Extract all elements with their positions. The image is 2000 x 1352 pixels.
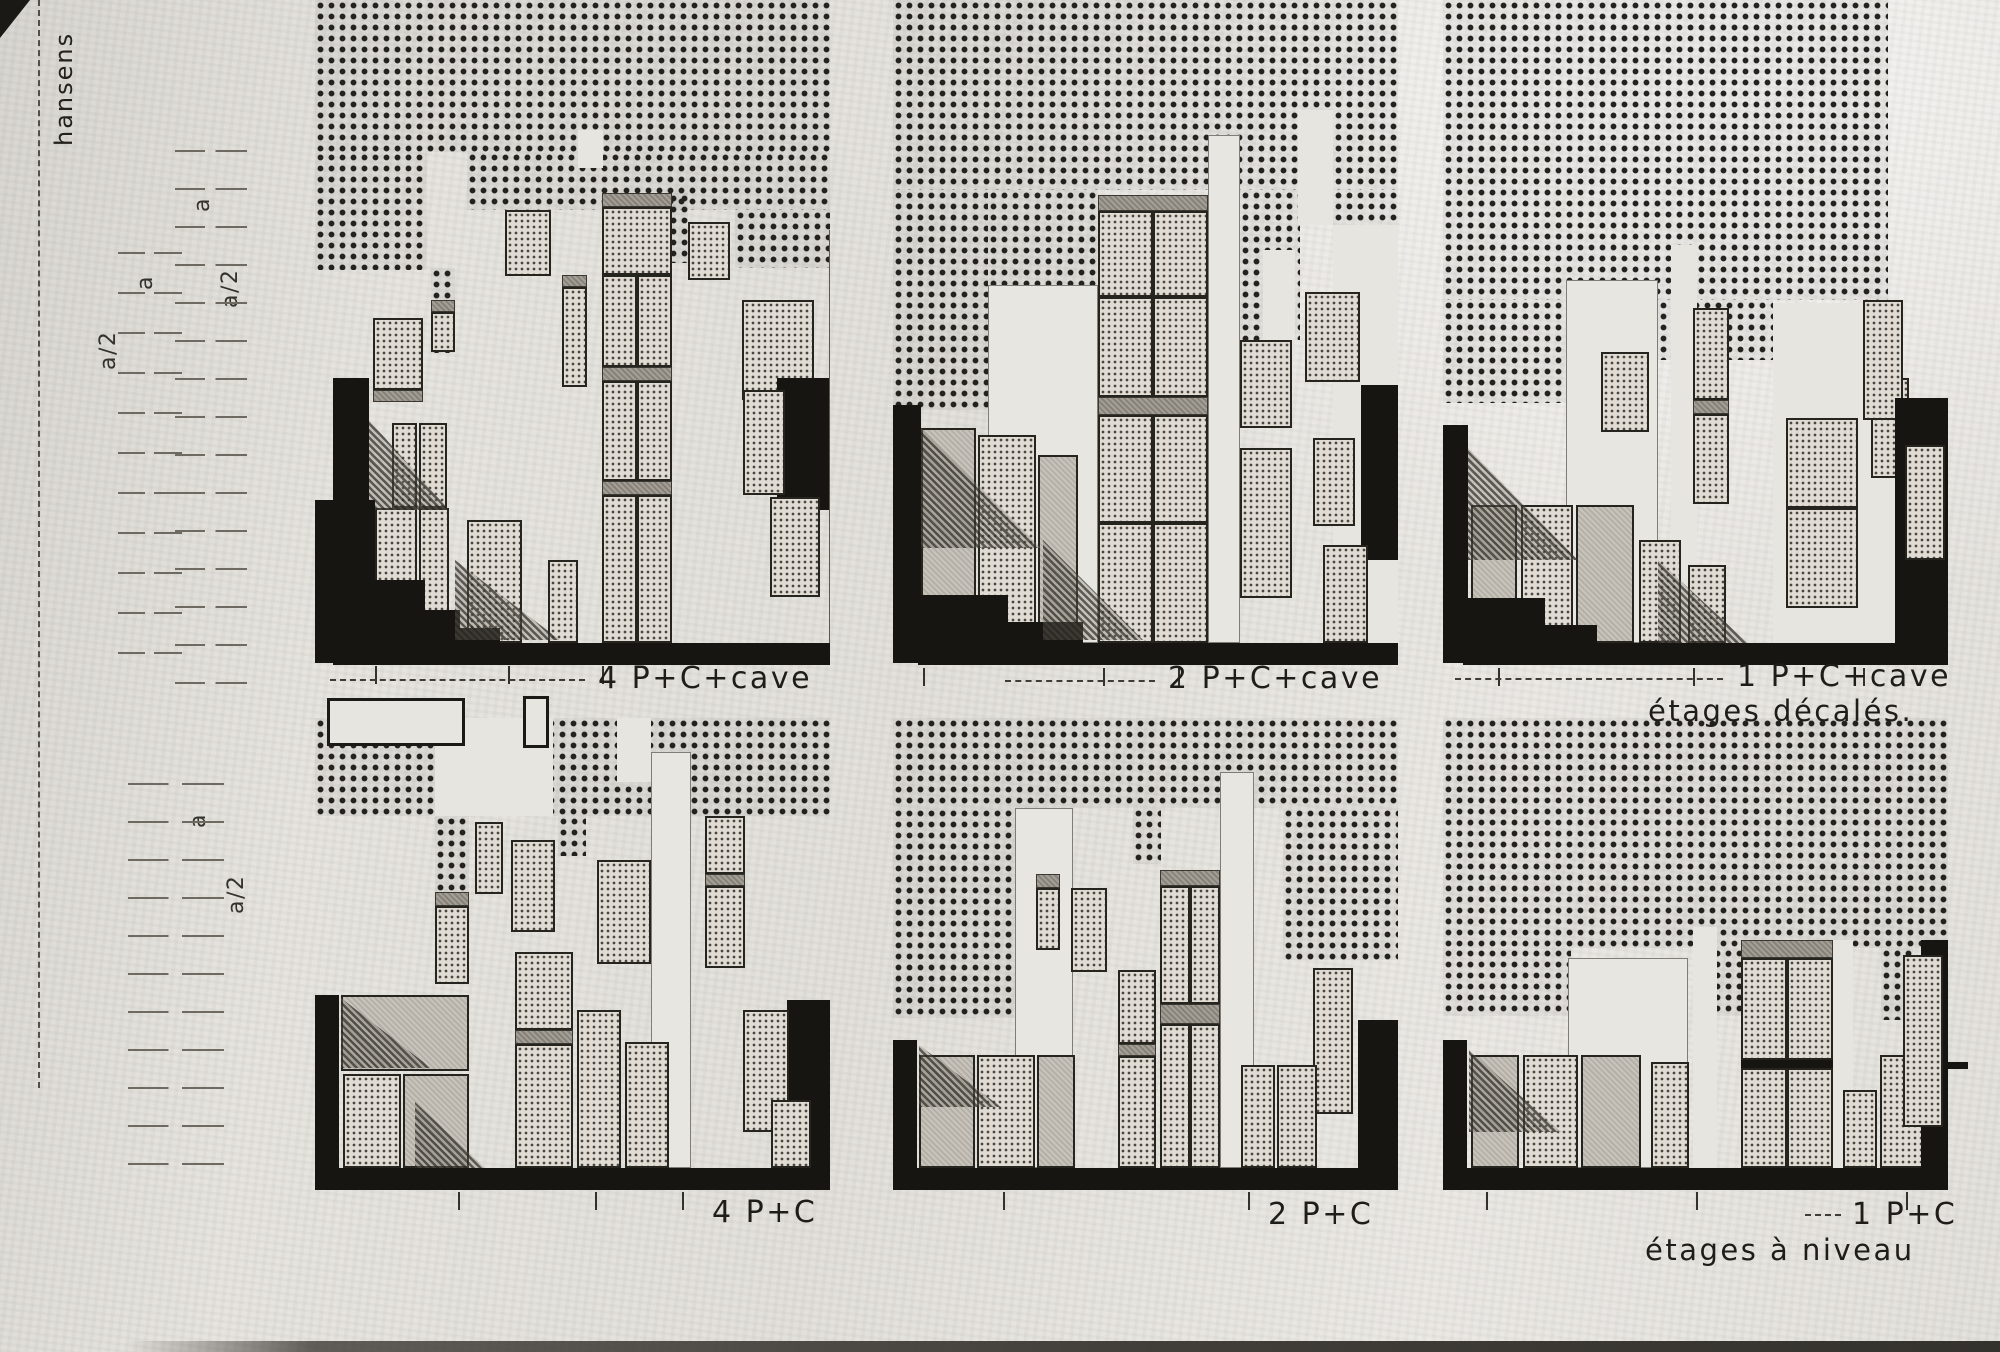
room-hatch — [602, 275, 637, 367]
scale-label-a: a — [190, 197, 215, 212]
hatch-shadow — [1468, 448, 1578, 560]
paper-cutout — [617, 718, 651, 782]
ruler-tick — [118, 492, 182, 494]
ruler-tick — [118, 372, 182, 374]
scale-label-a2: a/2 — [96, 331, 121, 370]
ruler-tick — [118, 652, 182, 654]
room-hatch — [515, 952, 573, 1030]
room-hatch — [1240, 340, 1292, 428]
room-hatch — [637, 381, 672, 481]
room-hatch — [1153, 523, 1208, 643]
stray-mark — [1948, 1062, 1968, 1069]
grey-band — [515, 1030, 573, 1044]
panel-sublabel: étages à niveau — [1645, 1233, 1915, 1267]
baseline-tick — [595, 1192, 597, 1210]
scale-label-a2: a/2 — [224, 875, 249, 914]
grey-band — [1098, 195, 1208, 211]
grey-band — [431, 300, 455, 312]
room-hatch — [562, 287, 587, 387]
room-hatch — [771, 1100, 811, 1168]
ink-block — [1741, 1060, 1833, 1068]
ruler-tick — [175, 226, 247, 228]
room-hatch — [1786, 418, 1858, 508]
panel-label: 4 P+C+cave — [598, 661, 812, 696]
ink-block — [315, 1168, 830, 1190]
grey-band — [602, 367, 672, 381]
halftone-area — [435, 816, 469, 892]
section-panel-4pc — [315, 712, 830, 1190]
room-hatch — [435, 906, 469, 984]
label-leader-dashes — [1005, 680, 1155, 682]
margin-dashed-line — [38, 0, 40, 1088]
room-hatch — [637, 275, 672, 367]
halftone-area — [893, 808, 1015, 1018]
ruler-tick — [175, 150, 247, 152]
room-hatch — [1313, 438, 1355, 526]
room-hatch — [1786, 508, 1858, 608]
halftone-area — [893, 718, 1398, 808]
room-hatch — [1693, 308, 1729, 400]
baseline-tick — [375, 666, 377, 684]
room-hatch — [548, 560, 578, 643]
baseline-tick — [1696, 1192, 1698, 1210]
ruler-tick — [128, 1049, 224, 1051]
label-leader-dashes — [1805, 1214, 1841, 1216]
room-hatch — [743, 390, 785, 495]
outline-box — [327, 698, 465, 746]
grey-band — [435, 892, 469, 906]
baseline-tick — [1486, 1192, 1488, 1210]
paper-cutout — [578, 130, 603, 168]
ruler-tick — [175, 568, 247, 570]
section-panel-2pc-cave — [893, 0, 1398, 665]
scale-label-a: a — [133, 275, 158, 290]
ruler-tick — [118, 572, 182, 574]
baseline-tick — [1498, 668, 1500, 686]
ruler-tick — [118, 292, 182, 294]
ruler-tick — [175, 492, 247, 494]
halftone-area — [1443, 300, 1566, 403]
room-hatch — [505, 210, 551, 276]
room-hatch — [1693, 414, 1729, 504]
room-hatch — [1787, 958, 1833, 1060]
room-hatch — [602, 207, 672, 275]
room-hatch — [1601, 352, 1649, 432]
grey-band — [1160, 870, 1220, 886]
ruler-tick — [128, 1011, 224, 1013]
grey-band — [562, 275, 587, 287]
section-panel-1pc — [1443, 712, 1948, 1190]
grey-band — [1036, 874, 1060, 888]
section-panel-4pc-cave — [315, 0, 830, 665]
room-hatch — [637, 495, 672, 643]
room-hatch — [1098, 297, 1153, 397]
halftone-area — [1133, 808, 1161, 864]
baseline-tick — [1248, 1192, 1250, 1210]
ruler-tick — [118, 612, 182, 614]
room-hatch — [431, 312, 455, 352]
room-hatch — [1843, 1090, 1877, 1168]
ruler-tick — [118, 412, 182, 414]
room-hatch — [705, 816, 745, 874]
label-leader-dashes — [330, 679, 585, 681]
panel-label: 1 P+C+cave — [1737, 659, 1951, 694]
ink-block — [1443, 1040, 1467, 1168]
halftone-area — [558, 816, 586, 856]
ruler-tick — [118, 252, 182, 254]
grain-block — [1581, 1055, 1641, 1168]
baseline-tick — [682, 1192, 684, 1210]
room-hatch — [1651, 1062, 1689, 1168]
room-hatch — [343, 1074, 401, 1168]
ruler-tick — [175, 454, 247, 456]
halftone-area — [1443, 0, 1888, 300]
section-panel-1pc-cave — [1443, 0, 1948, 665]
room-hatch — [1313, 968, 1353, 1114]
room-hatch — [1787, 1068, 1833, 1168]
ruler-tick — [128, 897, 224, 899]
ruler-tick — [118, 452, 182, 454]
baseline-tick — [1103, 668, 1105, 686]
ruler-tick — [175, 340, 247, 342]
outline-box — [523, 696, 549, 748]
halftone-area — [1333, 190, 1398, 225]
grain-block — [1037, 1055, 1075, 1168]
halftone-area — [988, 190, 1098, 285]
grey-band — [705, 874, 745, 886]
room-hatch — [1277, 1065, 1317, 1168]
ruler-tick — [128, 783, 224, 785]
ruler-tick — [128, 859, 224, 861]
ruler-tick — [118, 332, 182, 334]
halftone-area — [893, 190, 988, 410]
halftone-area — [315, 0, 830, 152]
ruler-tick — [175, 644, 247, 646]
room-hatch — [602, 495, 637, 643]
room-hatch — [1153, 211, 1208, 297]
ink-block — [893, 1168, 1398, 1190]
panel-label: 1 P+C — [1852, 1197, 1957, 1232]
scanned-drawing-page: hansens a a a/2 a/2 a a/2 4 P+C+cave 2 P… — [0, 0, 2000, 1352]
room-hatch — [515, 1044, 573, 1168]
room-hatch — [1240, 448, 1292, 598]
ruler-tick — [175, 302, 247, 304]
halftone-area — [1443, 948, 1571, 1016]
room-hatch — [1153, 415, 1208, 523]
room-hatch — [625, 1042, 669, 1168]
label-leader-dashes — [1455, 678, 1723, 680]
room-hatch — [1160, 886, 1190, 1004]
grey-band — [602, 193, 672, 207]
baseline-tick — [1693, 668, 1695, 686]
halftone-area — [315, 152, 427, 270]
room-hatch — [1098, 415, 1153, 523]
ruler-tick — [128, 935, 224, 937]
room-hatch — [1098, 211, 1153, 297]
halftone-area — [735, 210, 830, 268]
room-hatch — [1241, 1065, 1275, 1168]
baseline-tick — [923, 668, 925, 686]
ink-block — [1361, 385, 1398, 560]
grey-band — [1118, 1044, 1156, 1056]
baseline-tick — [458, 1192, 460, 1210]
ink-block — [315, 995, 339, 1168]
paper-cutout — [1693, 927, 1717, 1168]
ruler-tick — [175, 378, 247, 380]
grey-band — [373, 390, 423, 402]
ruler-tick — [128, 973, 224, 975]
room-hatch — [597, 860, 651, 964]
section-panel-2pc — [893, 712, 1398, 1190]
signature-text: hansens — [50, 32, 78, 146]
panel-label: 2 P+C+cave — [1168, 661, 1382, 696]
ruler-tick — [128, 1087, 224, 1089]
ruler-tick — [128, 821, 224, 823]
halftone-area — [1283, 808, 1398, 960]
room-hatch — [1190, 886, 1220, 1004]
room-hatch — [475, 822, 503, 894]
room-hatch — [511, 840, 555, 932]
edge-line — [829, 230, 830, 643]
room-hatch — [1190, 1024, 1220, 1168]
grey-band — [1160, 1004, 1220, 1024]
paper-cutout — [1208, 135, 1240, 643]
panel-label: 2 P+C — [1268, 1197, 1373, 1232]
room-hatch — [373, 318, 423, 390]
photo-corner-mark — [0, 0, 30, 38]
ink-block — [1358, 1020, 1398, 1168]
panel-label: 4 P+C — [712, 1195, 817, 1230]
room-hatch — [1036, 888, 1060, 950]
room-hatch — [1741, 958, 1787, 1060]
ruler-tick — [175, 188, 247, 190]
room-hatch — [705, 886, 745, 968]
grain-block — [1576, 505, 1634, 643]
room-hatch — [770, 497, 820, 597]
ink-block — [893, 1040, 917, 1168]
room-hatch — [1305, 292, 1360, 382]
panel-sublabel: étages décalés. — [1648, 694, 1913, 728]
room-hatch — [602, 381, 637, 481]
ink-block — [333, 378, 369, 508]
room-hatch — [1905, 445, 1945, 560]
ink-block — [1443, 1168, 1948, 1190]
photo-bottom-edge — [125, 1341, 2000, 1352]
grey-band — [1741, 940, 1833, 958]
halftone-area — [1443, 718, 1948, 948]
ruler-tick — [118, 532, 182, 534]
room-hatch — [1323, 545, 1368, 643]
room-hatch — [1118, 970, 1156, 1044]
room-hatch — [1118, 1056, 1156, 1168]
room-hatch — [577, 1010, 621, 1168]
ruler-tick — [175, 264, 247, 266]
ruler-tick — [175, 416, 247, 418]
room-hatch — [977, 1055, 1035, 1168]
ruler-tick — [175, 530, 247, 532]
room-hatch — [688, 222, 730, 280]
baseline-tick — [1003, 1192, 1005, 1210]
ruler-tick — [175, 682, 247, 684]
room-hatch — [1741, 1068, 1787, 1168]
ruler-tick — [128, 1125, 224, 1127]
grey-band — [1693, 400, 1729, 414]
room-hatch — [1071, 888, 1107, 972]
baseline-tick — [508, 666, 510, 684]
room-hatch — [1903, 955, 1943, 1127]
room-hatch — [1153, 297, 1208, 397]
grey-band — [1098, 397, 1208, 415]
grey-band — [602, 481, 672, 495]
ruler-tick — [175, 606, 247, 608]
room-hatch — [1160, 1024, 1190, 1168]
paper-cutout — [1298, 110, 1333, 225]
ruler-tick — [128, 1163, 224, 1165]
